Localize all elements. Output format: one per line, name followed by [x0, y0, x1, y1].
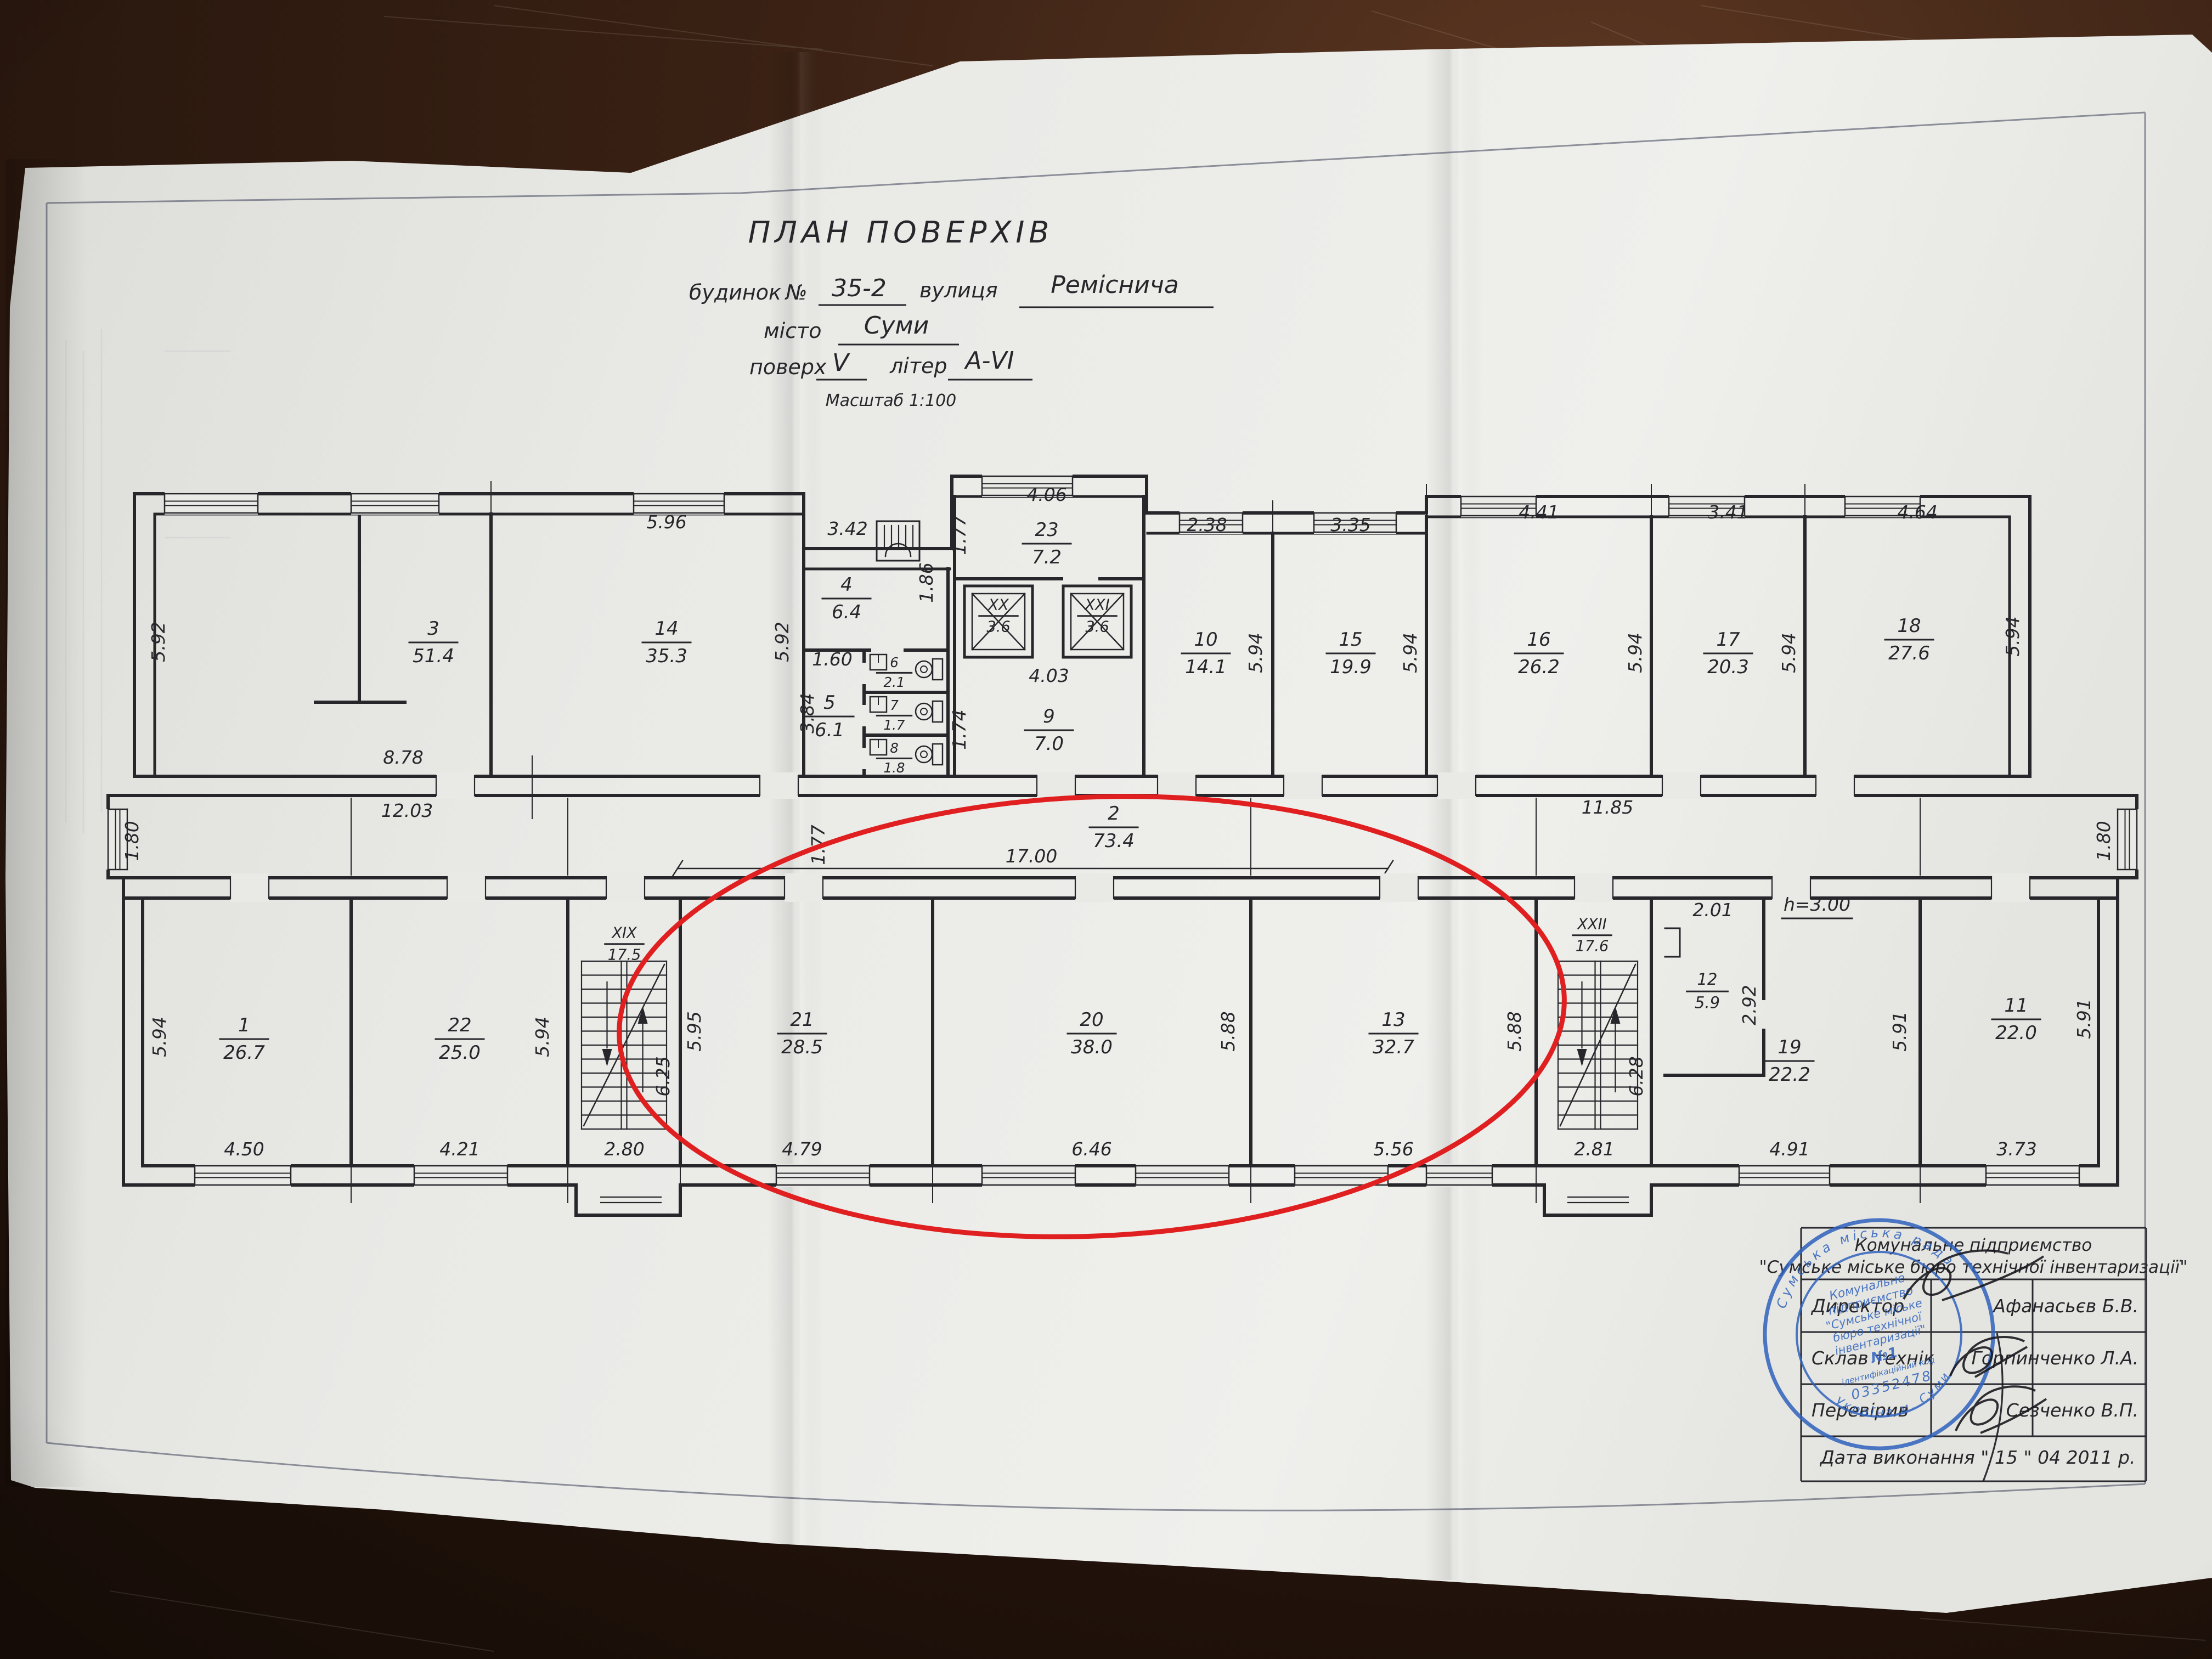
- scene: ПЛАН ПОВЕРХІВ будинок № 35-2 вулиця Ремі…: [0, 0, 2212, 1659]
- photo-vignette: [0, 0, 2212, 1659]
- photo-of-floor-plan: ПЛАН ПОВЕРХІВ будинок № 35-2 вулиця Ремі…: [0, 0, 2212, 1659]
